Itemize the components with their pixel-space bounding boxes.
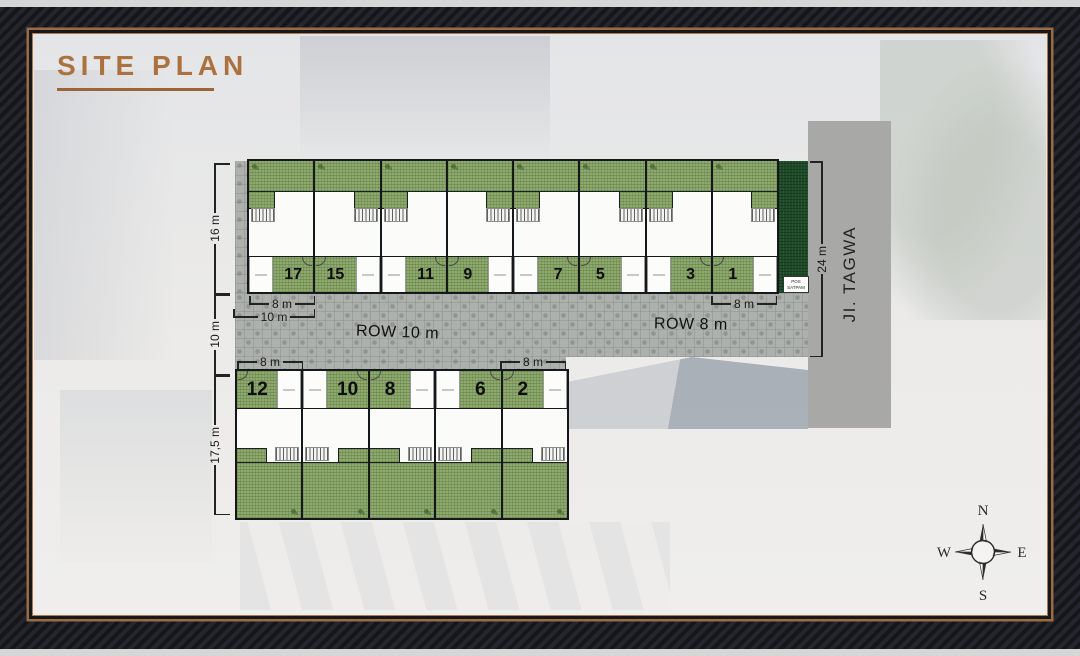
lot-number: 7 — [554, 266, 563, 284]
lot-number: 3 — [686, 266, 695, 284]
dim-label: 10 m — [261, 311, 288, 323]
carport — [410, 371, 434, 408]
row-8-label: ROW 8 m — [654, 315, 728, 334]
garden — [382, 161, 446, 192]
carport — [382, 257, 406, 292]
garden-extension — [338, 448, 368, 462]
stair-icon — [384, 208, 408, 222]
stair-icon — [305, 447, 329, 461]
dim-street-frontage: 24 m — [815, 161, 829, 357]
stair-icon — [438, 447, 462, 461]
front-yard: 6 — [460, 371, 500, 408]
garden-extension — [486, 192, 512, 209]
dim-label: 8 m — [734, 298, 754, 310]
letterbox-top — [0, 0, 1080, 7]
garden — [370, 462, 434, 518]
lot-9: 9 — [448, 161, 514, 292]
garden — [448, 161, 512, 192]
lot-front-section: 9 — [448, 256, 512, 292]
dim-label: 17,5 m — [208, 427, 222, 464]
stair-icon — [354, 208, 378, 222]
dim-label: 8 m — [260, 356, 280, 368]
lot-front-section: 10 — [303, 371, 367, 409]
lot-11: 11 — [382, 161, 448, 292]
lot-front-section: 6 — [436, 371, 500, 409]
carport — [277, 371, 301, 408]
page-title: SITE PLAN — [57, 50, 248, 82]
front-yard: 12 — [237, 371, 277, 408]
lot-3: 3 — [647, 161, 713, 292]
garden — [580, 161, 644, 192]
hedge-strip — [777, 161, 808, 293]
front-yard: 15 — [315, 257, 355, 292]
dim-lot-width-bottom-left: 8 m — [237, 354, 303, 370]
lot-8: 8 — [370, 371, 436, 518]
garden — [237, 462, 301, 518]
dim-label: 24 m — [815, 246, 829, 273]
lot-front-section: 15 — [315, 256, 379, 292]
carport — [356, 257, 380, 292]
lots-row-top: 17151197531 — [247, 159, 779, 294]
site-plan-page: { "title": "SITE PLAN", "plan": { "rows"… — [0, 0, 1080, 656]
carport — [543, 371, 567, 408]
stair-icon — [619, 208, 643, 222]
carport — [436, 371, 460, 408]
front-yard: 10 — [327, 371, 367, 408]
front-yard: 5 — [580, 257, 620, 292]
garden — [303, 462, 367, 518]
lot-5: 5 — [580, 161, 646, 292]
dim-row-bottom-height: 17,5 m — [208, 375, 222, 515]
street-label: JI. TAGWA — [840, 226, 860, 322]
garden — [249, 161, 313, 192]
lot-front-section: 11 — [382, 256, 446, 292]
dim-label: 16 m — [208, 215, 222, 242]
lot-17: 17 — [249, 161, 315, 292]
stair-icon — [251, 208, 275, 222]
lot-12: 12 — [237, 371, 303, 518]
lot-number: 8 — [385, 379, 396, 401]
front-yard: 7 — [538, 257, 578, 292]
lot-15: 15 — [315, 161, 381, 292]
garden — [514, 161, 578, 192]
lot-number: 9 — [463, 266, 472, 284]
guard-post-line2: SATPAM — [787, 285, 805, 291]
garden-extension — [370, 448, 400, 462]
stair-icon — [275, 447, 299, 461]
lot-front-section: 3 — [647, 256, 711, 292]
lot-front-section: 1 — [713, 256, 777, 292]
carport — [621, 257, 645, 292]
stair-icon — [486, 208, 510, 222]
lot-front-section: 7 — [514, 256, 578, 292]
lot-1: 1 — [713, 161, 777, 292]
carport — [647, 257, 671, 292]
lot-front-section: 2 — [503, 371, 567, 409]
carport — [488, 257, 512, 292]
stair-icon — [408, 447, 432, 461]
lot-10: 10 — [303, 371, 369, 518]
compass-west-label: W — [937, 545, 952, 561]
garden — [647, 161, 711, 192]
carport — [303, 371, 327, 408]
lot-front-section: 17 — [249, 256, 313, 292]
garden-extension — [503, 448, 533, 462]
letterbox-bottom — [0, 649, 1080, 656]
lot-front-section: 5 — [580, 256, 644, 292]
lot-number: 15 — [326, 266, 344, 284]
dim-label: 10 m — [208, 321, 222, 348]
lots-row-bottom: 1210862 — [235, 369, 569, 520]
guard-post: POS SATPAM — [783, 276, 809, 293]
lot-number: 11 — [417, 266, 434, 284]
lot-number: 1 — [728, 266, 737, 284]
compass-rose: N E S W — [933, 498, 1033, 604]
garden — [503, 462, 567, 518]
front-yard: 3 — [671, 257, 711, 292]
dim-lot-width-top-right: 8 m — [711, 296, 777, 312]
garden-extension — [514, 192, 540, 209]
stair-icon — [541, 447, 565, 461]
carport — [514, 257, 538, 292]
compass-north-label: N — [978, 503, 989, 519]
garden-extension — [471, 448, 501, 462]
compass-east-label: E — [1017, 545, 1026, 561]
front-yard: 11 — [406, 257, 446, 292]
lot-number: 10 — [337, 379, 358, 401]
compass-needles — [955, 524, 1011, 580]
stair-icon — [649, 208, 673, 222]
title-underline — [57, 88, 214, 91]
garden-extension — [382, 192, 408, 209]
dim-label: 8 m — [523, 356, 543, 368]
lot-2: 2 — [503, 371, 567, 518]
garden-extension — [237, 448, 267, 462]
lot-number: 2 — [518, 379, 529, 401]
compass-south-label: S — [979, 588, 987, 604]
row-10-label: ROW 10 m — [356, 323, 440, 344]
carport — [249, 257, 273, 292]
front-yard: 1 — [713, 257, 753, 292]
lot-7: 7 — [514, 161, 580, 292]
front-yard: 17 — [273, 257, 313, 292]
lot-6: 6 — [436, 371, 502, 518]
garden — [436, 462, 500, 518]
lot-number: 6 — [475, 379, 486, 401]
dim-row-top-height: 16 m — [208, 163, 222, 294]
garden-extension — [249, 192, 275, 209]
stair-icon — [751, 208, 775, 222]
lot-number: 5 — [596, 266, 605, 284]
front-yard: 8 — [370, 371, 410, 408]
garden-extension — [619, 192, 645, 209]
front-yard: 2 — [503, 371, 543, 408]
lot-number: 17 — [284, 266, 302, 284]
stair-icon — [516, 208, 540, 222]
dim-road-width: 10 m — [208, 294, 222, 375]
lot-front-section: 8 — [370, 371, 434, 409]
garden-extension — [354, 192, 380, 209]
garden — [713, 161, 777, 192]
lot-number: 12 — [247, 379, 268, 401]
garden — [315, 161, 379, 192]
dim-lot-width-bottom-right: 8 m — [500, 354, 566, 370]
garden-extension — [647, 192, 673, 209]
carport — [753, 257, 777, 292]
front-yard: 9 — [448, 257, 488, 292]
garden-extension — [751, 192, 777, 209]
lot-front-section: 12 — [237, 371, 301, 409]
dim-lot-depth-top-left: 10 m — [233, 309, 315, 325]
